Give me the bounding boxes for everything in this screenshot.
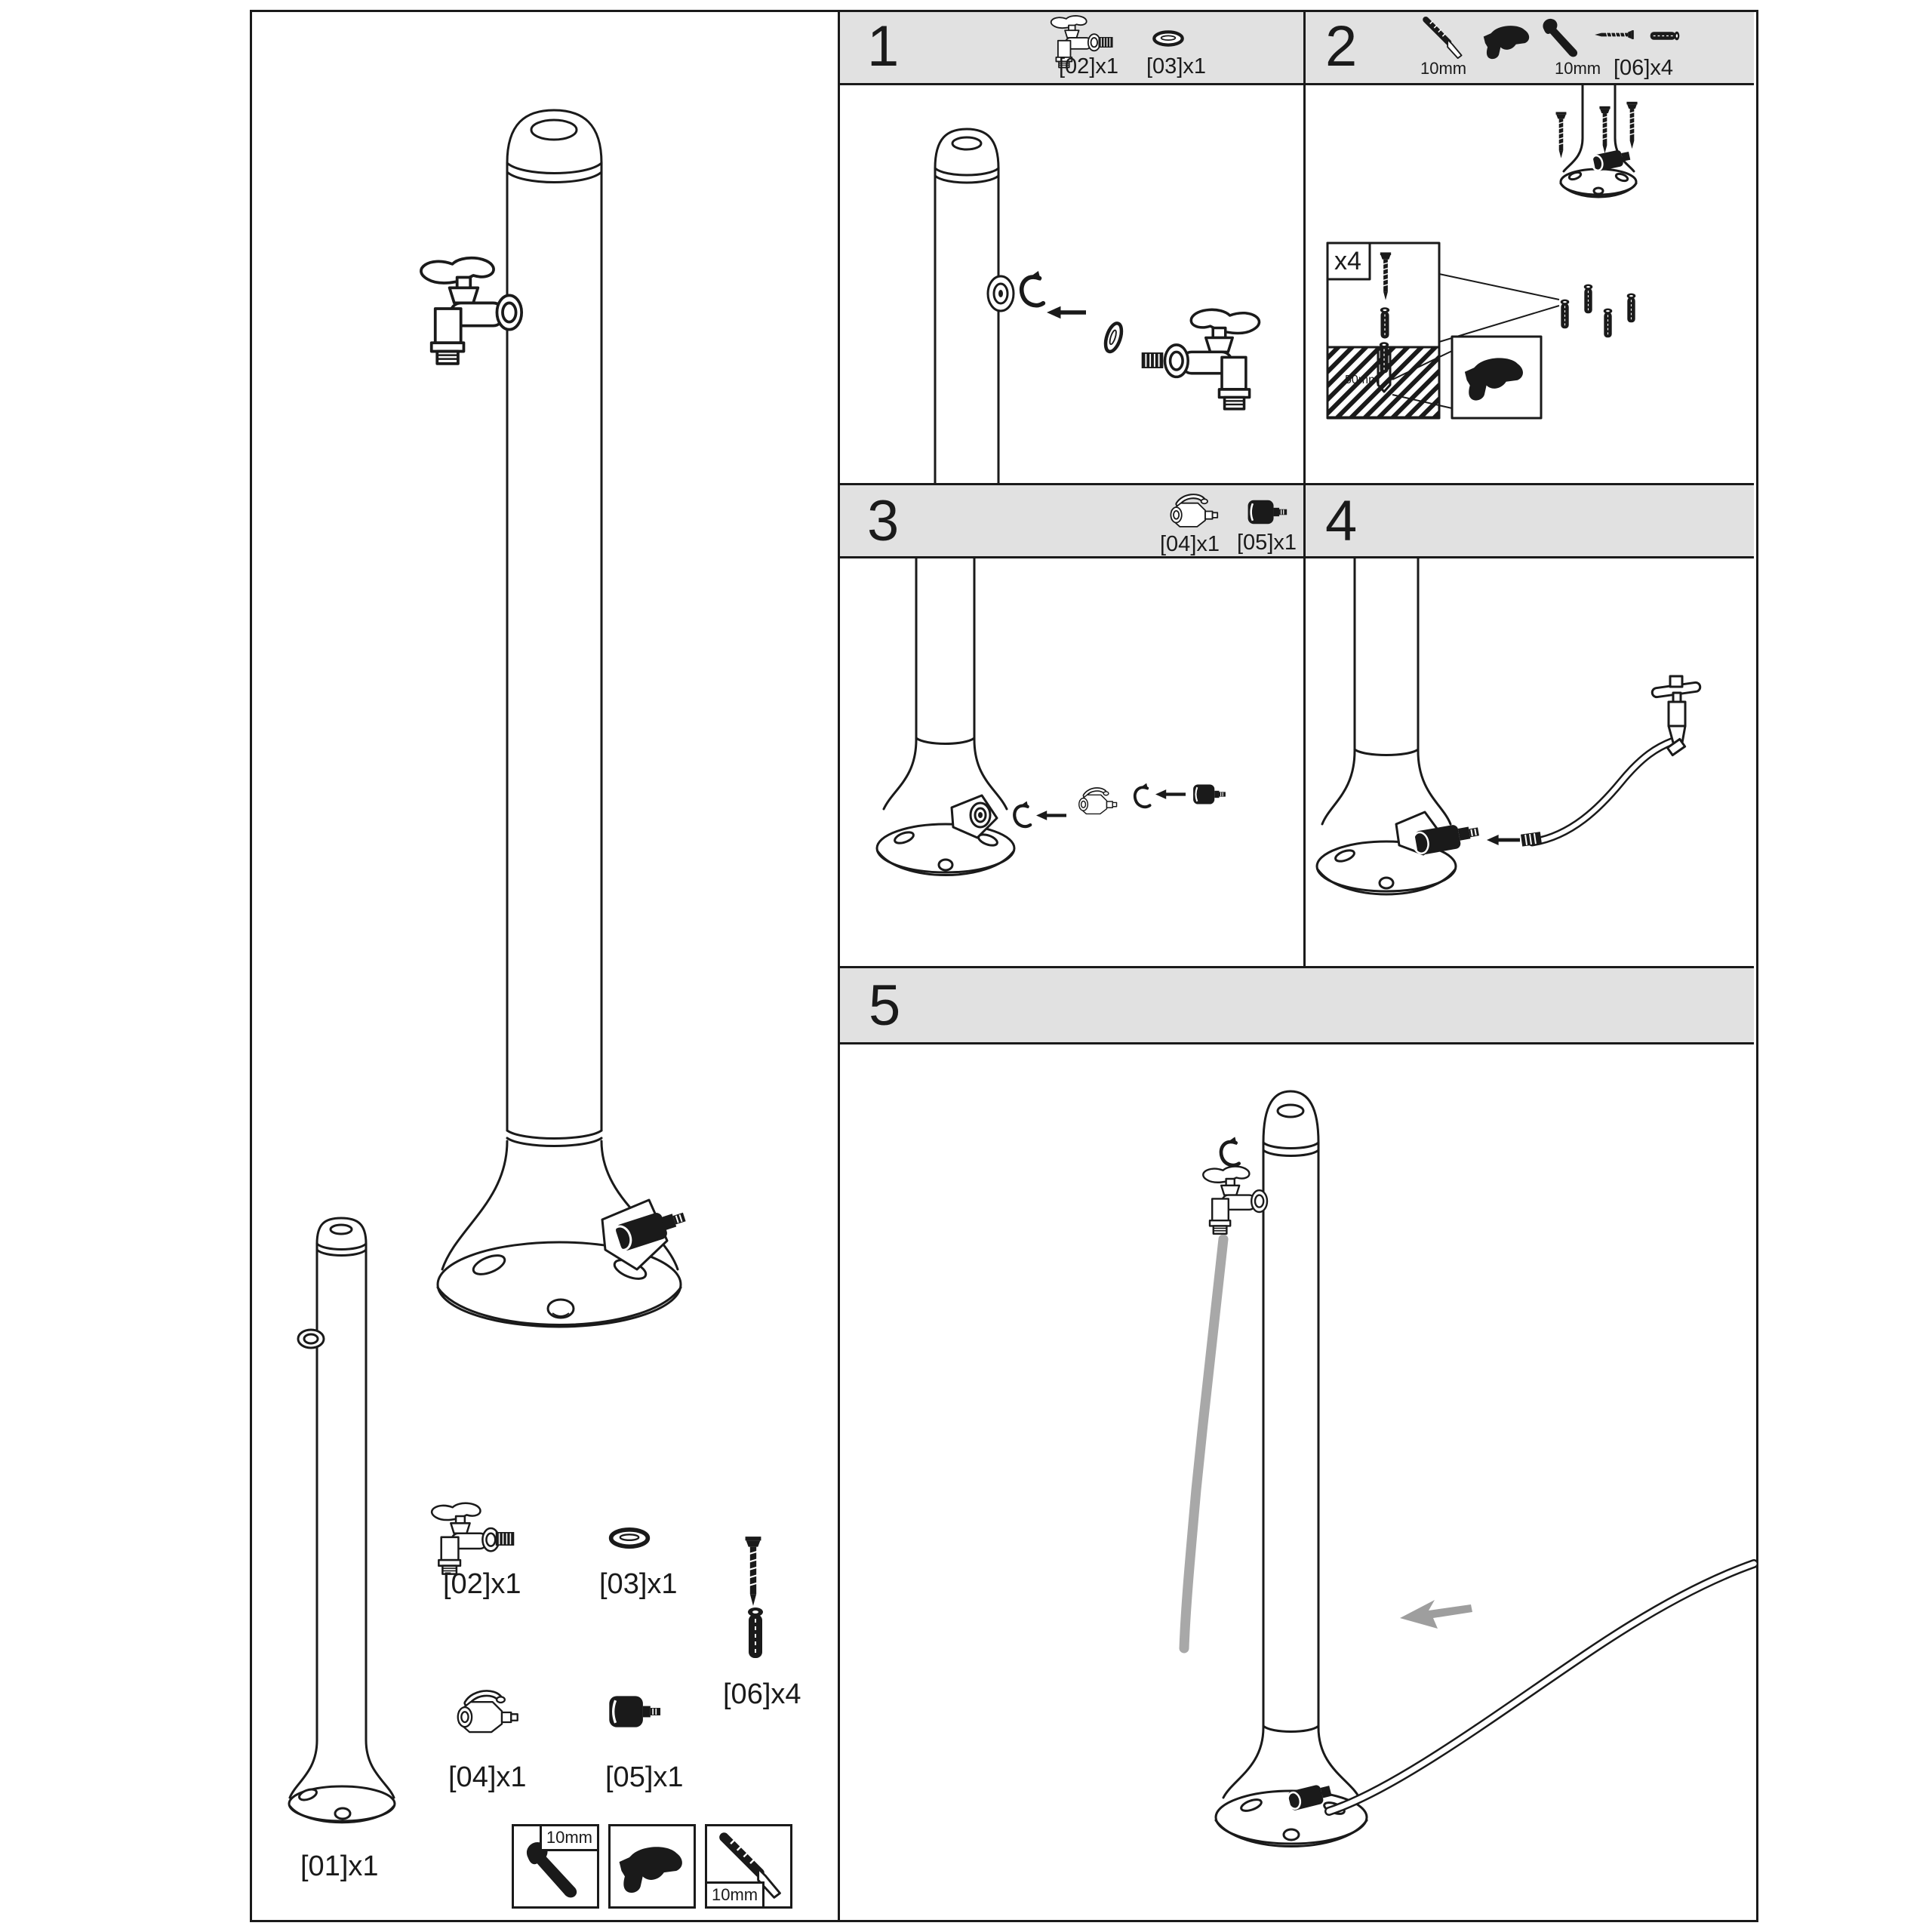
outlet-fitting — [1396, 812, 1481, 856]
step-2-wrench-size: 10mm — [1555, 59, 1601, 78]
step-2-illustration — [1306, 85, 1754, 483]
screw-icon — [1626, 102, 1637, 149]
socket-wrench-icon — [1543, 19, 1577, 57]
step-4-header: 4 — [1306, 483, 1754, 558]
step-1-header: 1 [02]x1 [03]x1 — [840, 12, 1306, 85]
o-ring-icon — [1103, 321, 1124, 354]
step-3-content — [840, 558, 1306, 966]
direction-arrow-icon — [1400, 1600, 1472, 1629]
part-04-valve-icon — [450, 1686, 519, 1739]
part-04-label: [04]x1 — [448, 1761, 527, 1794]
overview-panel: [01]x1 [02]x1 [03]x1 [06]x4 [04]x1 [05]x… — [250, 10, 840, 1922]
wall-plug-icon — [1561, 300, 1570, 329]
step-5-content — [840, 1044, 1754, 1918]
drill-bit-icon — [1426, 20, 1461, 58]
hose-connector-icon — [1193, 784, 1226, 804]
step-1-content — [840, 85, 1306, 483]
step-5-illustration — [840, 1044, 1754, 1918]
insert-arrow-icon — [1487, 835, 1520, 845]
rotate-arrow-icon — [1135, 783, 1150, 807]
drill-icon — [1484, 26, 1529, 59]
wrench-size-tag: 10mm — [540, 1824, 599, 1851]
step-3-header: 3 [04]x1 [05]x1 — [840, 483, 1306, 558]
rotate-arrow-icon — [1221, 1137, 1239, 1165]
tap-icon — [1203, 1167, 1267, 1234]
wall-plug-icon — [1584, 285, 1593, 314]
step-3-part-05-label: [05]x1 — [1237, 531, 1297, 555]
supply-hose — [1521, 741, 1673, 847]
anchor-count-label: x4 — [1334, 247, 1361, 276]
step-5-header: 5 — [840, 966, 1754, 1044]
insert-arrow-icon — [1036, 811, 1066, 820]
valve-icon — [1079, 789, 1117, 814]
screw-icon — [1599, 106, 1610, 153]
tap-icon — [1142, 309, 1260, 409]
rotate-arrow-icon — [1022, 271, 1044, 306]
tool-bit-box: 10mm — [705, 1824, 792, 1909]
step-3-header-icons — [840, 485, 1306, 558]
part-03-oring-icon — [607, 1524, 652, 1552]
wall-plug-icon — [1380, 342, 1389, 373]
part-06-label: [06]x4 — [723, 1678, 801, 1711]
step-1-part-02-label: [02]x1 — [1059, 54, 1118, 79]
part-01-label: [01]x1 — [300, 1850, 379, 1883]
part-05-label: [05]x1 — [605, 1761, 684, 1794]
wall-plug-icon — [1651, 32, 1680, 41]
screw-icon — [1595, 30, 1634, 39]
step-5-number: 5 — [869, 977, 900, 1035]
wall-plug-icon — [1604, 309, 1613, 338]
wall-plug-icon — [1380, 307, 1389, 338]
outlet-fitting — [1590, 148, 1631, 172]
o-ring-icon — [1154, 32, 1182, 45]
step-3-part-04-label: [04]x1 — [1160, 532, 1220, 557]
step-2-part-06-label: [06]x4 — [1614, 56, 1673, 81]
step-2-content: x4 50mm — [1306, 85, 1754, 483]
supply-hose — [1329, 1564, 1754, 1811]
screw-icon — [1556, 112, 1567, 158]
step-1-part-03-label: [03]x1 — [1146, 54, 1206, 79]
bit-size-tag: 10mm — [705, 1881, 764, 1909]
assembled-column-illustration — [400, 91, 717, 1374]
part-06-screw-icon — [743, 1535, 764, 1607]
instruction-sheet: { "palette": {"ink": "#1a1a1a", "header_… — [0, 0, 1932, 1932]
rotate-arrow-icon — [1014, 801, 1030, 827]
steps-panel: 1 [02]x1 [03]x1 2 10mm 10mm [06]x4 — [840, 10, 1758, 1922]
tool-wrench-box: 10mm — [512, 1824, 599, 1909]
water-stream — [1184, 1239, 1223, 1648]
step-2-bit-size: 10mm — [1420, 59, 1466, 78]
step-4-number: 4 — [1325, 493, 1357, 550]
step-1-illustration — [840, 85, 1306, 483]
insert-arrow-icon — [1155, 789, 1186, 799]
part-06-plug-icon — [746, 1606, 765, 1665]
step-3-illustration — [840, 558, 1306, 966]
part-02-label: [02]x1 — [443, 1568, 521, 1601]
part-03-label: [03]x1 — [599, 1568, 678, 1601]
step-4-content — [1306, 558, 1754, 966]
step-4-illustration — [1306, 558, 1754, 966]
valve-icon — [1171, 497, 1217, 527]
hose-connector-icon — [1248, 500, 1287, 524]
wall-plug-icon — [1627, 294, 1636, 323]
step-2-header: 2 10mm 10mm [06]x4 — [1306, 12, 1754, 85]
drill-icon — [614, 1838, 692, 1899]
step-2-header-icons — [1306, 12, 1754, 83]
insert-arrow-icon — [1047, 306, 1086, 318]
drill-depth-label: 50mm — [1345, 374, 1378, 387]
part-05-connector-icon — [607, 1692, 664, 1731]
column-part-illustration — [267, 1212, 395, 1846]
tool-drill-box — [608, 1824, 696, 1909]
